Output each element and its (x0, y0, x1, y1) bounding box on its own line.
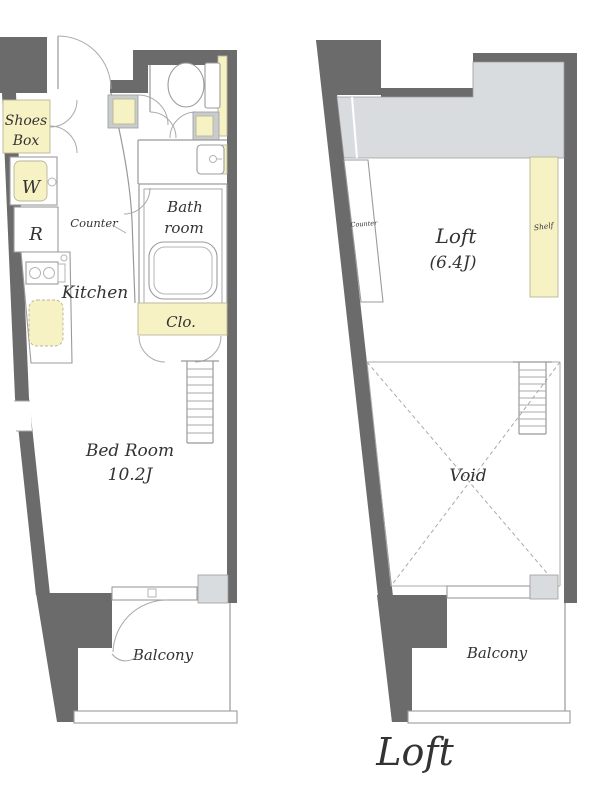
loft-balcony-label: Balcony (466, 644, 528, 662)
loft-balcony-rail (408, 711, 570, 723)
loft-room-label-1: Loft (435, 224, 478, 248)
closet-label: Clo. (166, 313, 196, 331)
floor-plan-drawing: Bath room Clo. Shoe (0, 0, 600, 800)
corridor-storage-unit (108, 95, 168, 128)
loft-window (447, 586, 530, 598)
refrigerator: R (14, 207, 58, 252)
entrance-door-icon (58, 36, 111, 89)
washer-label: W (22, 177, 42, 198)
loft-utility-box (530, 575, 558, 599)
bath-room-label-1: Bath (166, 198, 203, 216)
counter-label: Counter (70, 216, 119, 230)
void-label: Void (449, 466, 486, 486)
bath-room: Bath room (139, 184, 227, 308)
floor-plan-page: Bath room Clo. Shoe (0, 0, 600, 800)
loft-ladder-icon (181, 361, 219, 443)
main-floor-plan: Bath room Clo. Shoe (0, 36, 237, 723)
shoes-box: Shoes Box (3, 100, 77, 153)
bedroom-label-2: 10.2J (108, 465, 154, 485)
loft-shelf: Shelf (530, 157, 558, 297)
kitchen-label: Kitchen (61, 283, 128, 303)
utility-box (198, 575, 228, 603)
balcony-rail (74, 711, 237, 723)
page-title: Loft (375, 730, 454, 774)
loft-stairs-icon (513, 362, 552, 434)
loft-room-label-2: (6.4J) (429, 253, 476, 273)
kitchen-counter (21, 252, 72, 363)
closet: Clo. (138, 303, 227, 362)
bath-room-label-2: room (164, 219, 203, 237)
balcony-door-arc (113, 600, 167, 652)
toilet-icon (168, 63, 220, 108)
bathtub-icon (149, 242, 217, 299)
kitchen-side-window (14, 401, 32, 431)
washing-machine: W (10, 157, 57, 205)
balcony-label: Balcony (132, 646, 194, 664)
void-area: Void (367, 362, 560, 586)
toilet-room (150, 56, 227, 140)
loft-floor-plan: Counter Shelf Loft (6.4J) Void (316, 40, 577, 774)
shoes-box-label-1: Shoes (5, 113, 48, 129)
shoes-box-label-2: Box (12, 133, 40, 149)
bedroom-window (112, 587, 197, 600)
washbasin-icon (197, 145, 224, 174)
bedroom-label-1: Bed Room (85, 441, 174, 461)
fridge-label: R (28, 224, 43, 245)
